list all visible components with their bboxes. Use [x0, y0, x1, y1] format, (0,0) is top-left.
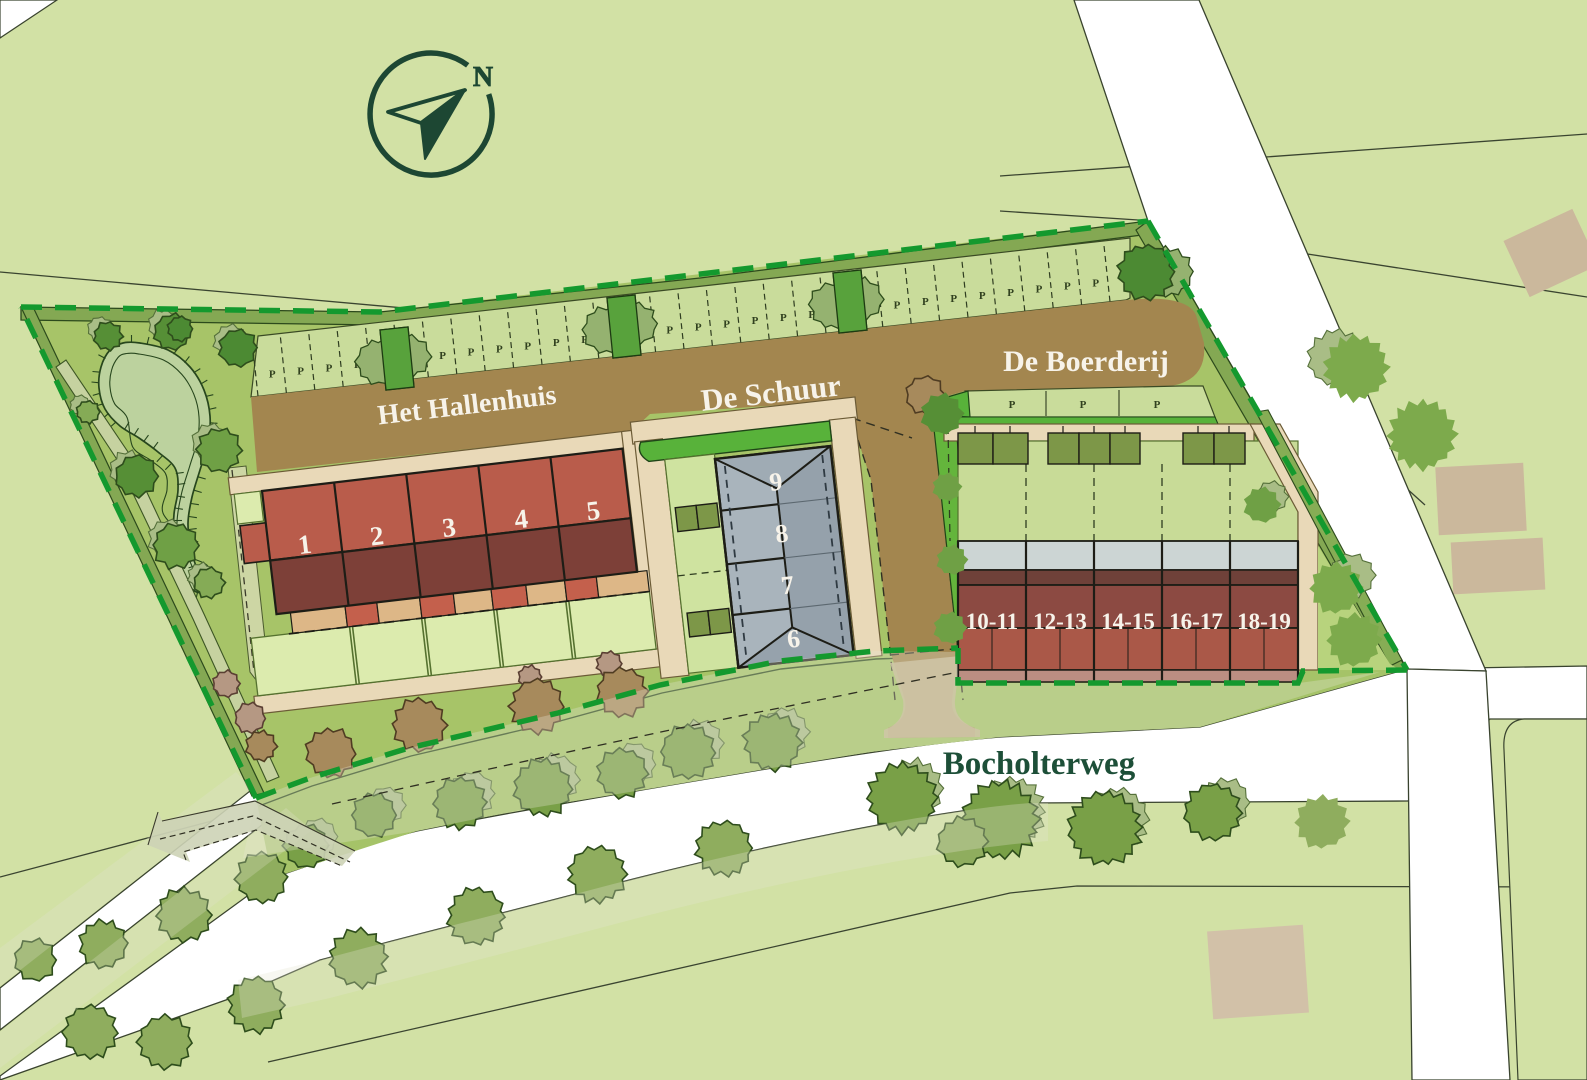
- svg-text:P: P: [524, 340, 531, 352]
- svg-text:N: N: [473, 62, 493, 93]
- svg-text:P: P: [1036, 284, 1043, 296]
- svg-text:10-11: 10-11: [966, 609, 1018, 634]
- svg-text:P: P: [1080, 399, 1087, 411]
- svg-text:16-17: 16-17: [1169, 609, 1223, 634]
- svg-text:P: P: [979, 290, 986, 302]
- svg-text:P: P: [297, 366, 304, 378]
- svg-text:De Boerderij: De Boerderij: [1003, 345, 1169, 378]
- svg-text:P: P: [666, 325, 673, 337]
- svg-text:P: P: [553, 337, 560, 349]
- svg-text:P: P: [1009, 399, 1016, 411]
- svg-text:P: P: [780, 312, 787, 324]
- svg-text:18-19: 18-19: [1237, 609, 1291, 634]
- svg-text:P: P: [1007, 287, 1014, 299]
- svg-text:P: P: [1064, 281, 1071, 293]
- svg-text:P: P: [950, 293, 957, 305]
- svg-text:P: P: [326, 362, 333, 374]
- svg-text:P: P: [1154, 399, 1161, 411]
- svg-text:P: P: [894, 299, 901, 311]
- svg-text:P: P: [468, 347, 475, 359]
- svg-text:12-13: 12-13: [1033, 609, 1087, 634]
- svg-text:P: P: [269, 369, 276, 381]
- svg-text:P: P: [1092, 277, 1099, 289]
- svg-text:P: P: [695, 321, 702, 333]
- svg-text:P: P: [496, 344, 503, 356]
- svg-text:Bocholterweg: Bocholterweg: [943, 746, 1136, 782]
- svg-text:P: P: [439, 350, 446, 362]
- svg-text:P: P: [723, 318, 730, 330]
- svg-text:P: P: [922, 296, 929, 308]
- svg-text:P: P: [752, 315, 759, 327]
- svg-text:14-15: 14-15: [1101, 609, 1155, 634]
